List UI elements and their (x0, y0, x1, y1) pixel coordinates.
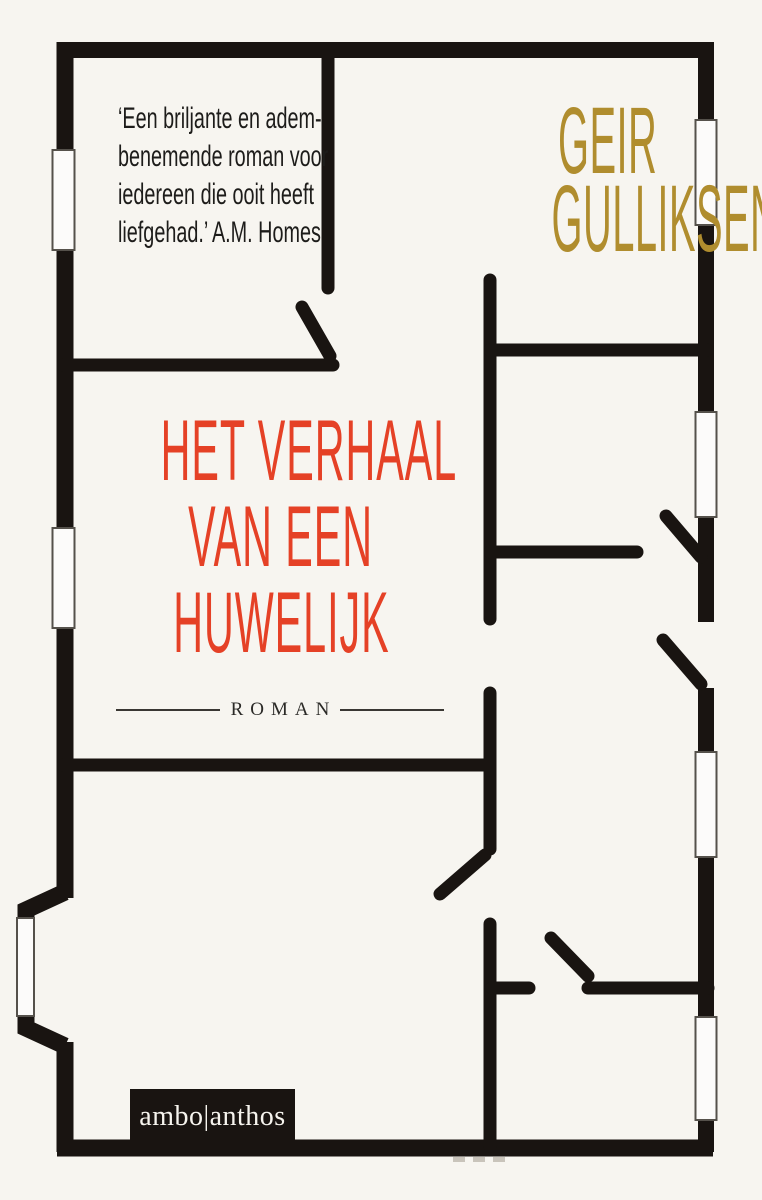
stair-tick (473, 1157, 485, 1162)
stair-ticks (453, 1157, 505, 1162)
author-name: GEIR GULLIKSEN (237, 102, 657, 258)
author-name-line: GULLIKSEN (237, 180, 657, 258)
door-leaf-3 (663, 640, 701, 684)
window-right-2 (696, 412, 717, 517)
genre-rule-left (116, 709, 220, 711)
genre-label: ROMAN (224, 699, 337, 721)
genre-rule-right (340, 709, 444, 711)
book-title-line: HUWELIJK (0, 580, 562, 666)
book-title-line: VAN EEN (0, 494, 562, 580)
stair-tick (493, 1157, 505, 1162)
publisher-logo: ambo|anthos (130, 1089, 295, 1140)
window-left-1 (53, 150, 75, 250)
genre-row: ROMAN (116, 700, 444, 720)
door-leaf-1 (302, 307, 330, 356)
book-title-line: HET VERHAAL (0, 408, 562, 494)
window-right-4 (696, 1017, 717, 1120)
book-cover: ‘Een briljante en adem- benemende roman … (0, 0, 762, 1200)
publisher-logo-text: ambo|anthos (139, 1097, 285, 1133)
door-leaf-2 (666, 516, 701, 557)
door-leaf-5 (551, 938, 588, 976)
window-bay (17, 918, 34, 1016)
book-title: HET VERHAAL VAN EEN HUWELIJK (0, 408, 562, 666)
window-right-3 (696, 752, 717, 857)
door-leaf-4 (440, 855, 485, 894)
stair-tick (453, 1157, 465, 1162)
